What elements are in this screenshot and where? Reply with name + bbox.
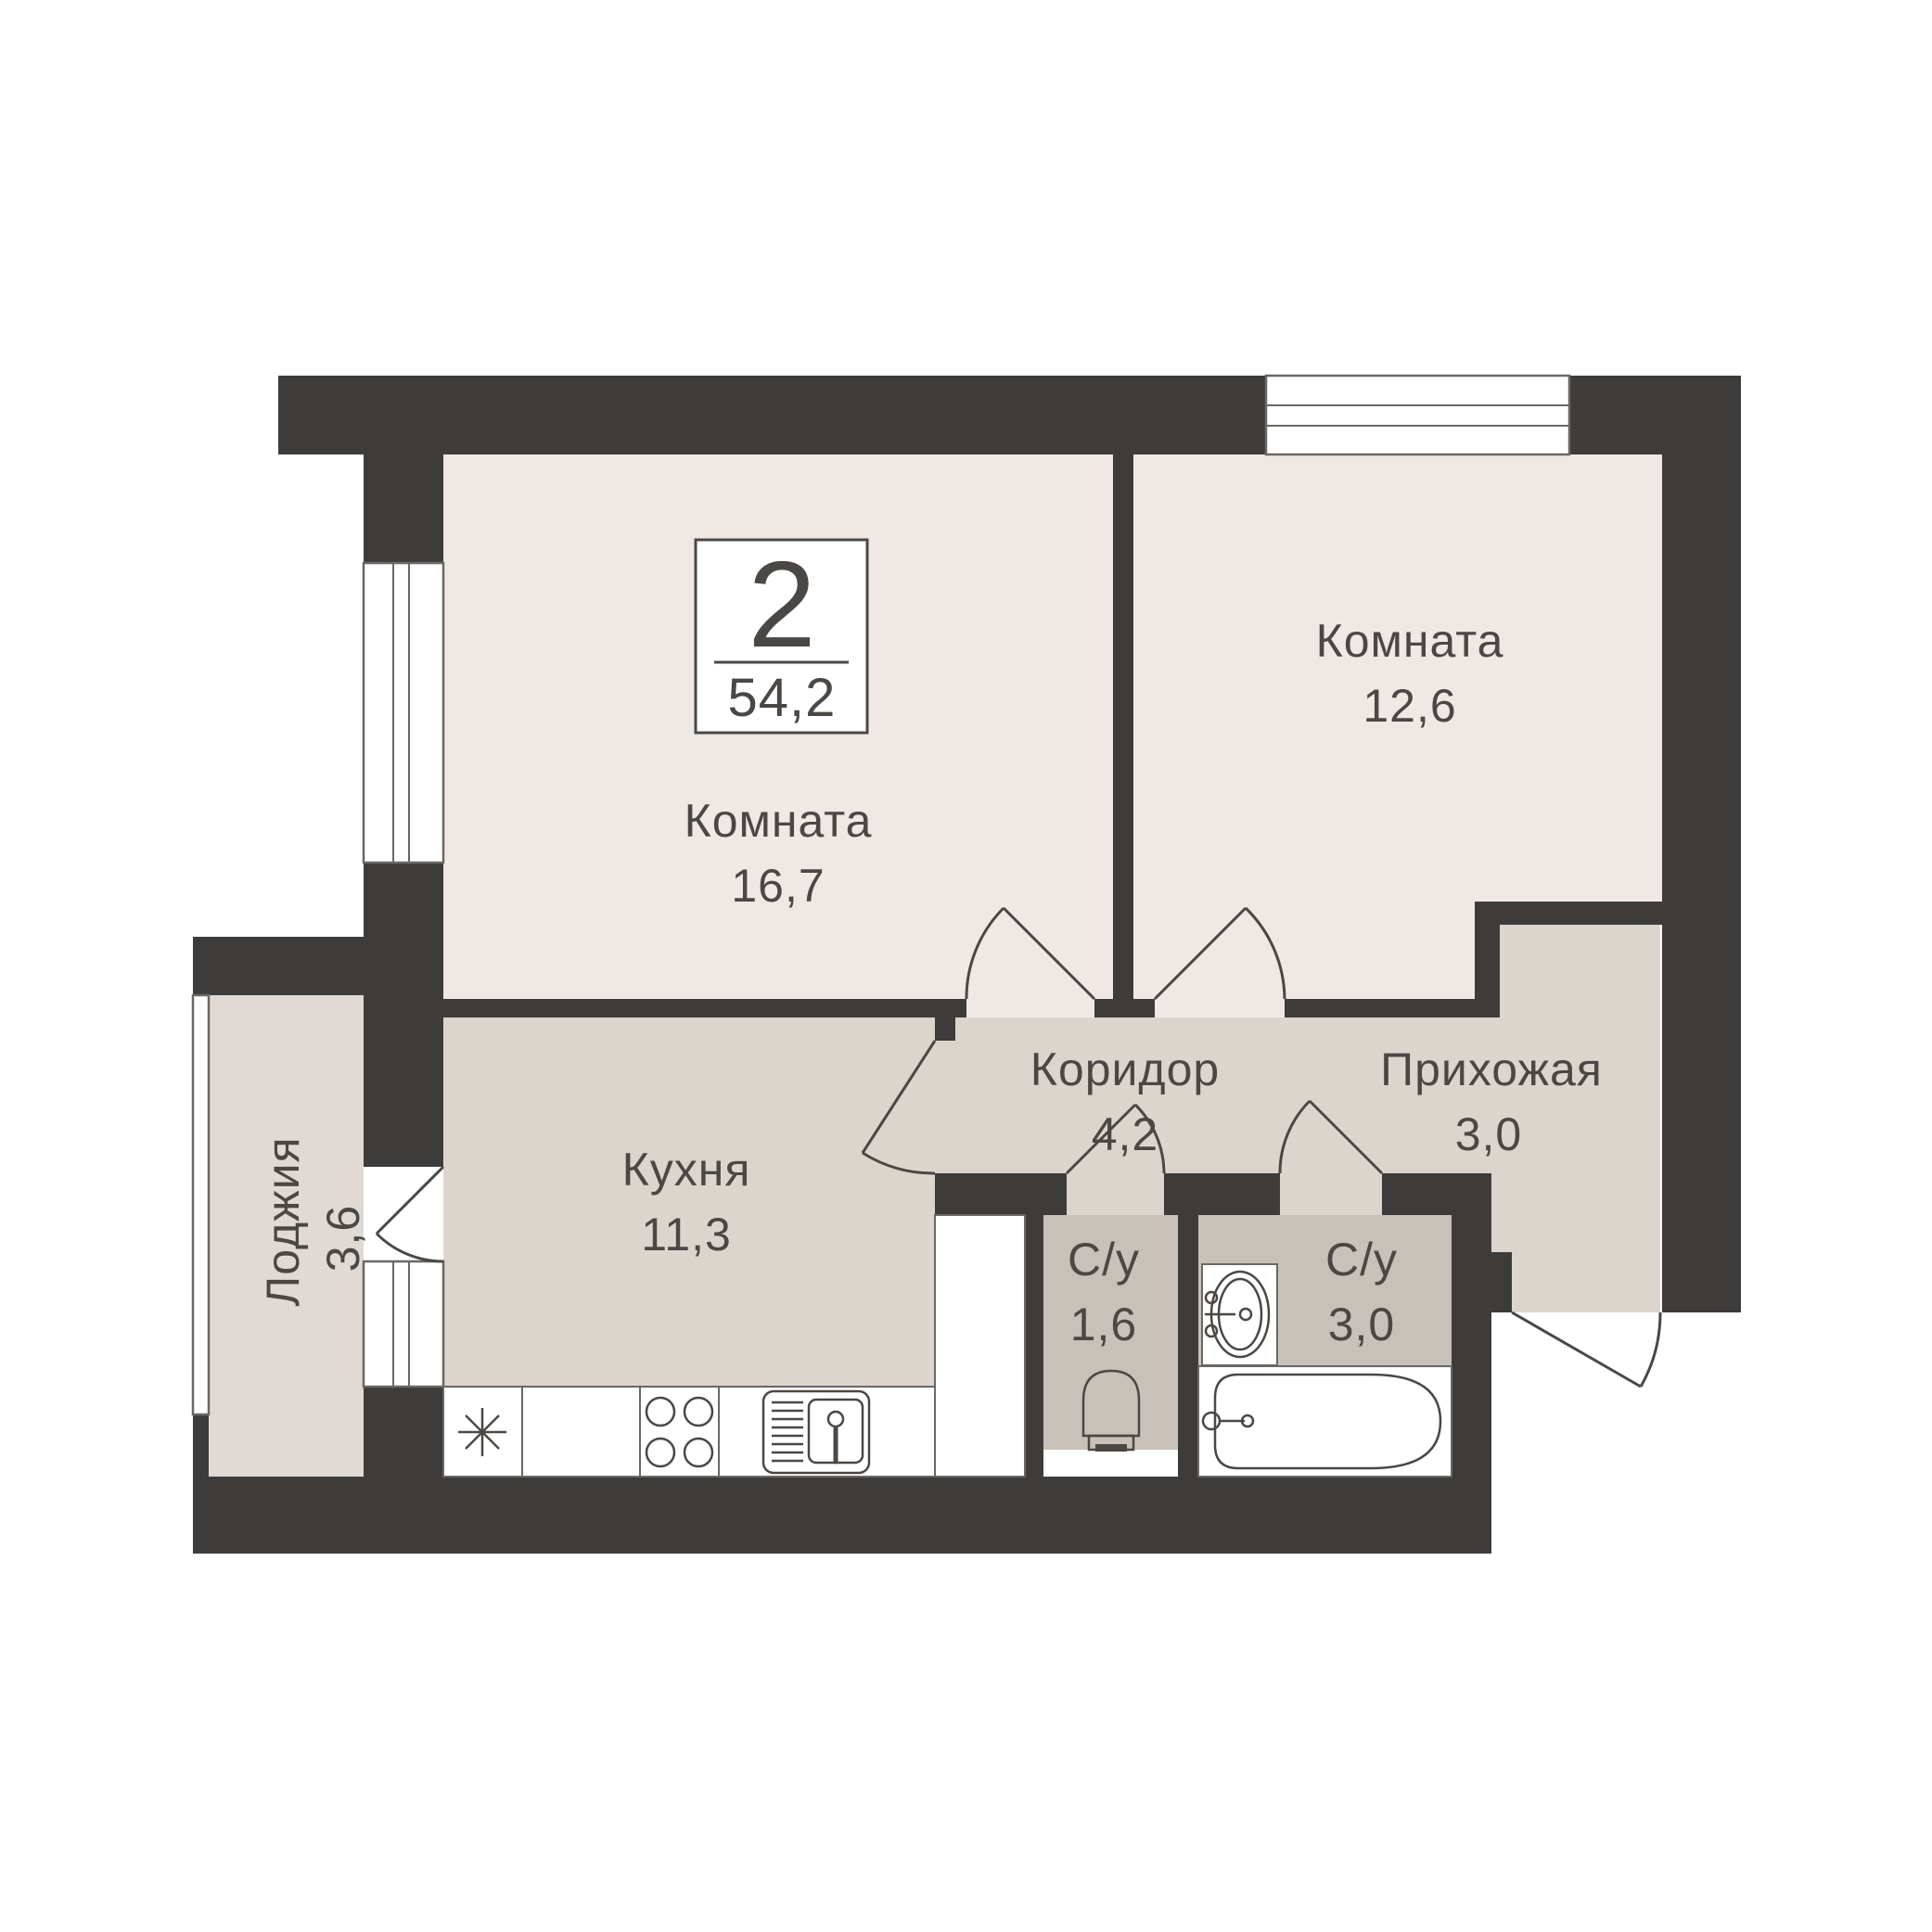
loggia-label: Лоджия bbox=[257, 1136, 309, 1306]
entrance-door-swing bbox=[1512, 1312, 1660, 1387]
unit-card: 2 54,2 bbox=[696, 536, 867, 733]
hallway-floor-bottom bbox=[1512, 1257, 1660, 1312]
living2-floor-lower bbox=[1133, 902, 1475, 999]
wall-left-lower bbox=[364, 1387, 443, 1477]
wc-small-area: 1,6 bbox=[1070, 1299, 1138, 1350]
living1-area: 16,7 bbox=[731, 860, 825, 912]
balcony-door-opening bbox=[364, 1167, 443, 1261]
living2-label: Комната bbox=[1316, 615, 1504, 667]
living1-door-threshold bbox=[966, 999, 1094, 1017]
wall-left-upper bbox=[364, 454, 443, 563]
hallway-floor-top bbox=[1500, 925, 1660, 1017]
unit-total-area: 54,2 bbox=[728, 668, 837, 728]
wall-wc-left bbox=[1025, 1196, 1043, 1477]
kitchen-area: 11,3 bbox=[641, 1209, 732, 1260]
living2-area: 12,6 bbox=[1363, 680, 1456, 732]
wall-bottom bbox=[193, 1477, 1491, 1554]
kitchen-counter bbox=[443, 1387, 935, 1477]
wall-hallway-notch-top bbox=[1500, 902, 1662, 925]
hallway-area: 3,0 bbox=[1455, 1108, 1523, 1160]
wall-wc-divider bbox=[1178, 1196, 1198, 1477]
kitchen-floor bbox=[443, 1017, 935, 1387]
wall-wc-band-left bbox=[935, 1173, 1067, 1215]
wall-loggia-top bbox=[193, 937, 364, 995]
hallway-label: Прихожая bbox=[1380, 1043, 1603, 1095]
wall-left-mid bbox=[364, 863, 443, 1167]
ventilation-shaft bbox=[935, 1215, 1025, 1477]
wall-bath-right bbox=[1452, 1173, 1491, 1477]
wall-between-rooms-stub bbox=[1094, 999, 1155, 1017]
window-living2-top bbox=[1266, 376, 1569, 454]
window-living1-left bbox=[364, 563, 443, 863]
bathtub-icon bbox=[1198, 1366, 1452, 1477]
washbasin-icon bbox=[1202, 1264, 1277, 1365]
wc-small-label: С/у bbox=[1068, 1234, 1140, 1286]
wc-large-area: 3,0 bbox=[1328, 1299, 1396, 1350]
corridor-label: Коридор bbox=[1030, 1043, 1220, 1095]
window-kitchen-left bbox=[364, 1261, 443, 1387]
kitchen-label: Кухня bbox=[622, 1144, 751, 1196]
wall-wc-band-right bbox=[1382, 1173, 1452, 1215]
wall-right bbox=[1662, 454, 1741, 1312]
wall-corridor-top-right bbox=[1285, 999, 1475, 1017]
wall-kitchen-stub-top bbox=[935, 1017, 955, 1041]
wc-small-door-threshold bbox=[1067, 1173, 1164, 1215]
corridor-area: 4,2 bbox=[1092, 1108, 1159, 1160]
wall-corridor-top-left bbox=[443, 999, 966, 1017]
wc-large-door-threshold bbox=[1280, 1173, 1382, 1215]
wc-small-floor-strip bbox=[1043, 1450, 1178, 1477]
wall-hallway-notch-vert bbox=[1475, 902, 1500, 1017]
living2-door-threshold bbox=[1155, 999, 1285, 1017]
loggia-area: 3,6 bbox=[317, 1205, 369, 1273]
living2-floor bbox=[1133, 454, 1662, 902]
floor-plan: 2 54,2 Комната 16,7 Комната 12,6 Кухня 1… bbox=[0, 0, 1932, 1932]
loggia-glazing bbox=[193, 995, 209, 1414]
wc-large-label: С/у bbox=[1325, 1234, 1398, 1286]
wall-entry-stub bbox=[1491, 1252, 1512, 1312]
wall-loggia-corner bbox=[193, 1414, 209, 1477]
kitchen-door-threshold bbox=[935, 1041, 955, 1173]
wall-between-rooms bbox=[1113, 454, 1133, 999]
living1-label: Комната bbox=[685, 795, 873, 847]
unit-rooms-count: 2 bbox=[748, 536, 815, 672]
